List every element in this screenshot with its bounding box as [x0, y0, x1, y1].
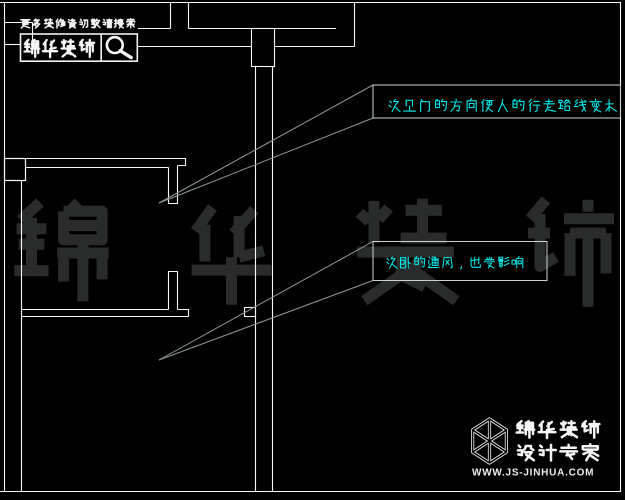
svg-text:WWW.JS-JINHUA.COM: WWW.JS-JINHUA.COM [472, 468, 594, 479]
